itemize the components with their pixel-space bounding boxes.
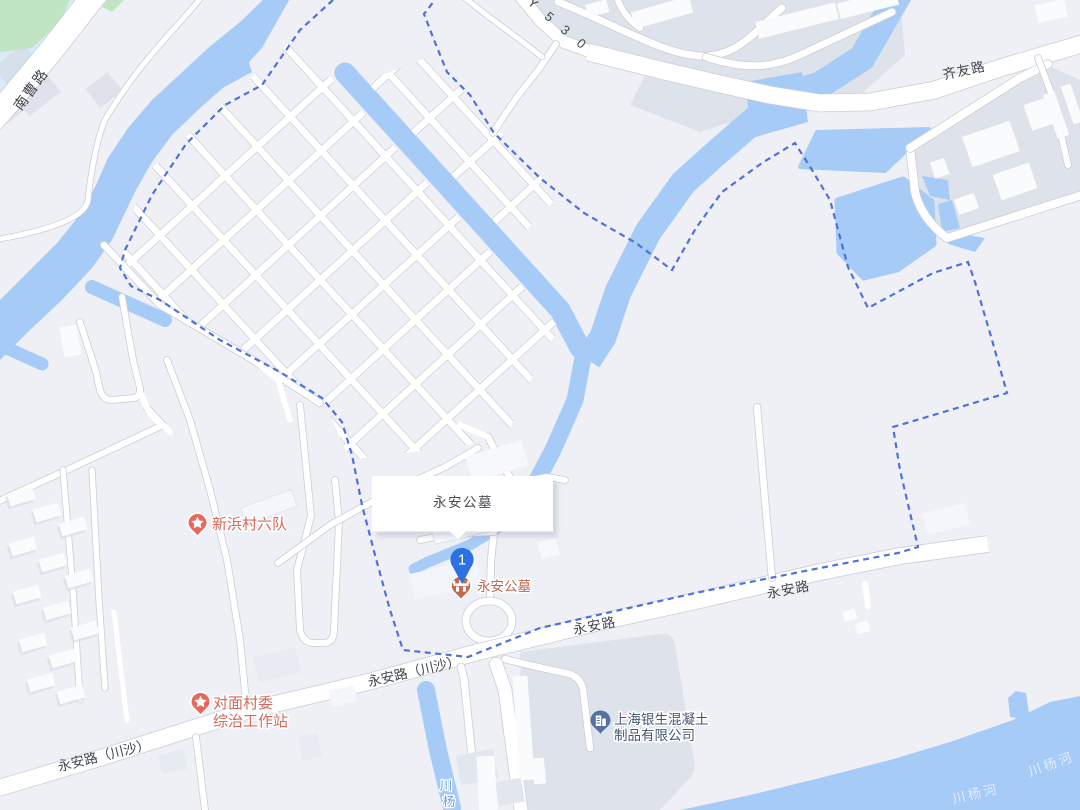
svg-text:永安公墓: 永安公墓 — [433, 495, 493, 510]
svg-text:上海银生混凝土: 上海银生混凝土 — [614, 712, 709, 727]
svg-text:1: 1 — [458, 552, 466, 569]
svg-text:杨: 杨 — [443, 794, 456, 809]
svg-text:综治工作站: 综治工作站 — [213, 713, 288, 730]
svg-text:川: 川 — [440, 779, 453, 793]
svg-text:永安公墓: 永安公墓 — [477, 579, 531, 594]
svg-text:制品有限公司: 制品有限公司 — [614, 728, 695, 743]
svg-text:新浜村六队: 新浜村六队 — [212, 516, 287, 533]
svg-text:对面村委: 对面村委 — [213, 695, 273, 712]
